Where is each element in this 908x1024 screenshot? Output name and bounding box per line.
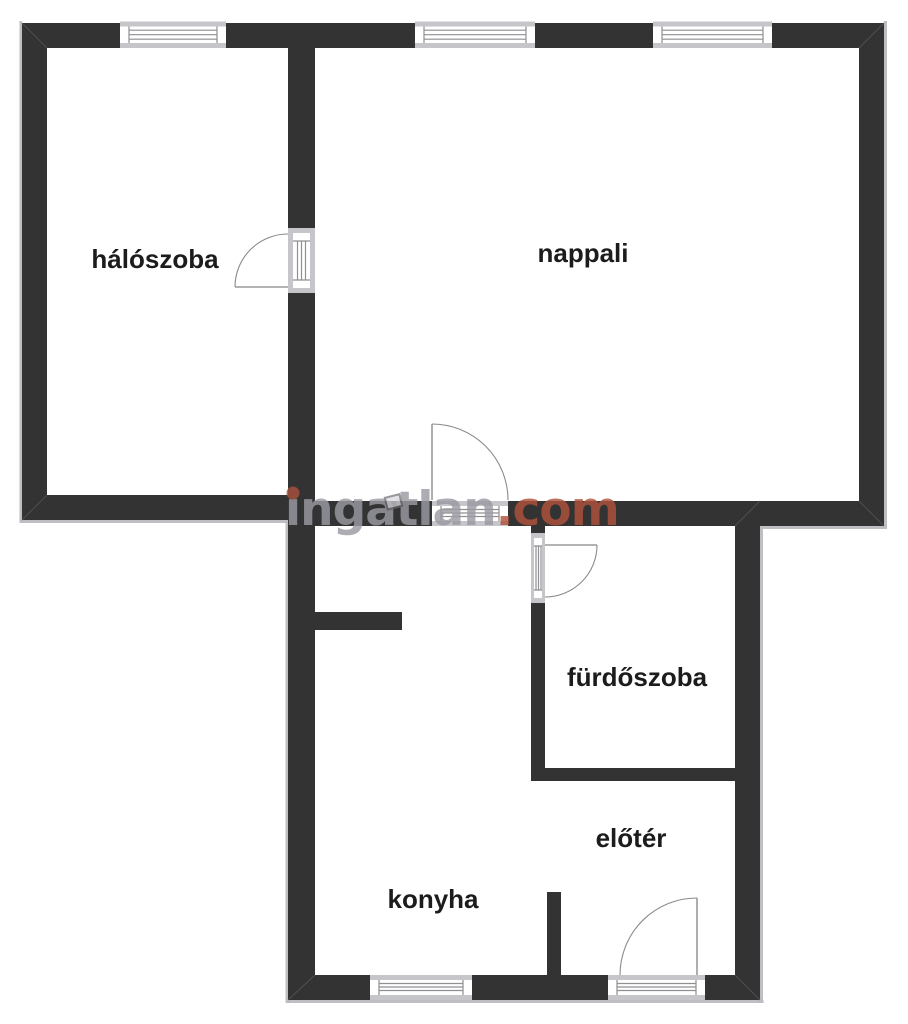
wall-kitchen-hall-stub [547, 892, 561, 975]
wall-hall-right [735, 501, 760, 1000]
room-label-nappali: nappali [537, 238, 628, 268]
wall-living-right [859, 23, 884, 526]
door-icon [531, 533, 597, 603]
floorplan-image: ingatlan.com hálószoba nappali fürdőszob… [0, 0, 908, 1024]
watermark-i-dot [287, 487, 300, 500]
wall-bath-bottom [531, 768, 760, 781]
window-icon [653, 22, 772, 49]
floorplan-svg: ingatlan.com hálószoba nappali fürdőszob… [0, 0, 908, 1024]
wall-bedroom-bottom [22, 495, 315, 520]
outline-living-bottom [760, 526, 887, 529]
wall-left [22, 23, 47, 520]
room-label-konyha: konyha [387, 884, 479, 914]
window-icon [415, 22, 535, 49]
outline-lower-right [760, 526, 763, 1003]
door-icon [235, 228, 315, 293]
watermark: ingatlan.com [285, 482, 619, 537]
room-labels: hálószoba nappali fürdőszoba előtér kony… [91, 238, 707, 914]
outline-left [20, 21, 23, 523]
room-label-eloter: előtér [596, 823, 667, 853]
room-label-haloszoba: hálószoba [91, 244, 219, 274]
wall-kitchen-stub [315, 612, 402, 630]
outline-kitchen-left [286, 520, 289, 1003]
watermark-house-icon [385, 494, 402, 509]
room-label-furdoszoba: fürdőszoba [567, 662, 708, 692]
outline-right [884, 21, 887, 528]
watermark-text: ingatlan.com [285, 482, 619, 537]
window-icon [370, 975, 472, 1000]
outline-bottom [286, 1000, 764, 1003]
watermark-red-part: .com [496, 482, 619, 537]
outline-bedroom-bottom [20, 520, 290, 523]
window-icon [120, 22, 226, 49]
entrance-door-icon [608, 898, 705, 1000]
